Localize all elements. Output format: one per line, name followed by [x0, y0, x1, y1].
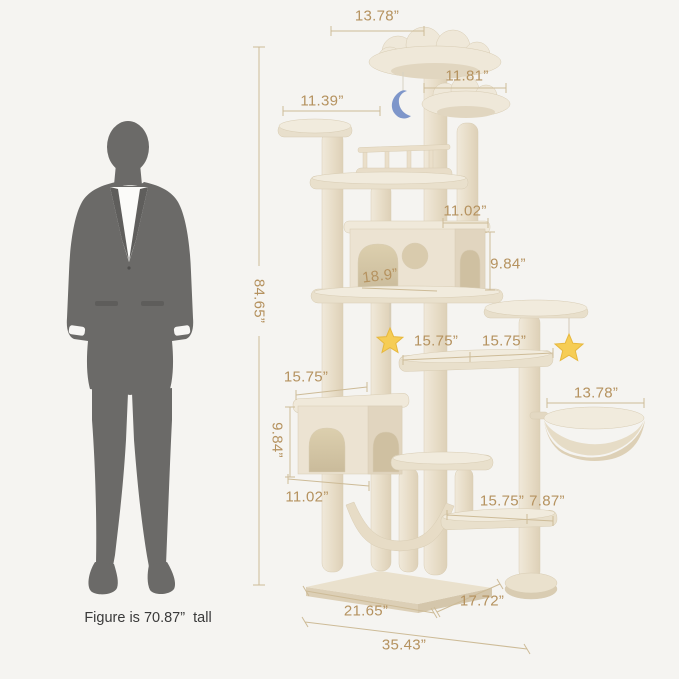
lower-condo-arch-front — [309, 428, 345, 472]
pocket-left — [95, 301, 118, 306]
right-disc-base — [505, 573, 557, 599]
dim-upper-right-perch: 11.81” — [445, 68, 488, 85]
dim-lower-condo-front: 11.02” — [285, 489, 328, 506]
cat-tree — [278, 27, 645, 613]
dim-upper-condo-height: 9.84” — [490, 256, 526, 273]
neck — [114, 164, 142, 185]
pocket-right — [141, 301, 164, 306]
figure-height-caption: Figure is 70.87” tall — [84, 610, 211, 626]
small-mid-platform — [391, 452, 493, 470]
dim-overall-height: 84.65” — [251, 279, 268, 323]
button — [127, 266, 130, 269]
upper-wide-platform — [310, 172, 468, 189]
dim-lower-condo-top: 15.75” — [284, 369, 328, 386]
post-central — [424, 68, 447, 575]
upper-condo-hole — [402, 243, 428, 269]
leg-right — [132, 388, 172, 567]
moon-toy-icon — [392, 90, 411, 118]
dim-base-side-depth: 17.72” — [460, 593, 504, 610]
dim-basket-diameter: 13.78” — [574, 385, 618, 402]
leg-left — [92, 388, 128, 566]
shoe-right — [148, 562, 175, 594]
dim-middle-right-platform: 15.75” — [482, 333, 526, 350]
post-lower-mid — [399, 468, 418, 572]
upper-condo-arch-right — [460, 250, 480, 292]
dim-overall-width: 35.43” — [382, 637, 426, 654]
hanging-basket — [530, 407, 645, 461]
product-dimension-diagram: 13.78” 11.81” 11.39” 84.65” 11.02” 9.84”… — [0, 0, 679, 679]
right-oval-platform — [484, 300, 588, 318]
dim-upper-condo-depth: 11.02” — [443, 203, 486, 220]
dim-bottom-platform-depth: 7.87” — [529, 493, 565, 510]
right-cloud-underside — [437, 106, 495, 118]
dim-top-perch-width: 13.78” — [355, 8, 399, 25]
under-condo-platform — [311, 286, 503, 303]
dim-bottom-platform-width: 15.75” — [480, 493, 524, 510]
shoe-left — [88, 562, 117, 594]
dim-upper-left-platform: 11.39” — [300, 93, 343, 110]
post-left — [322, 131, 343, 572]
star-toy-right-icon — [555, 334, 583, 361]
upper-left-platform — [278, 119, 352, 137]
human-silhouette — [67, 121, 193, 594]
dim-lower-condo-height: 9.84” — [269, 422, 286, 458]
dim-middle-left-platform: 15.75” — [414, 333, 458, 350]
dim-base-front-width: 21.65” — [344, 603, 388, 620]
